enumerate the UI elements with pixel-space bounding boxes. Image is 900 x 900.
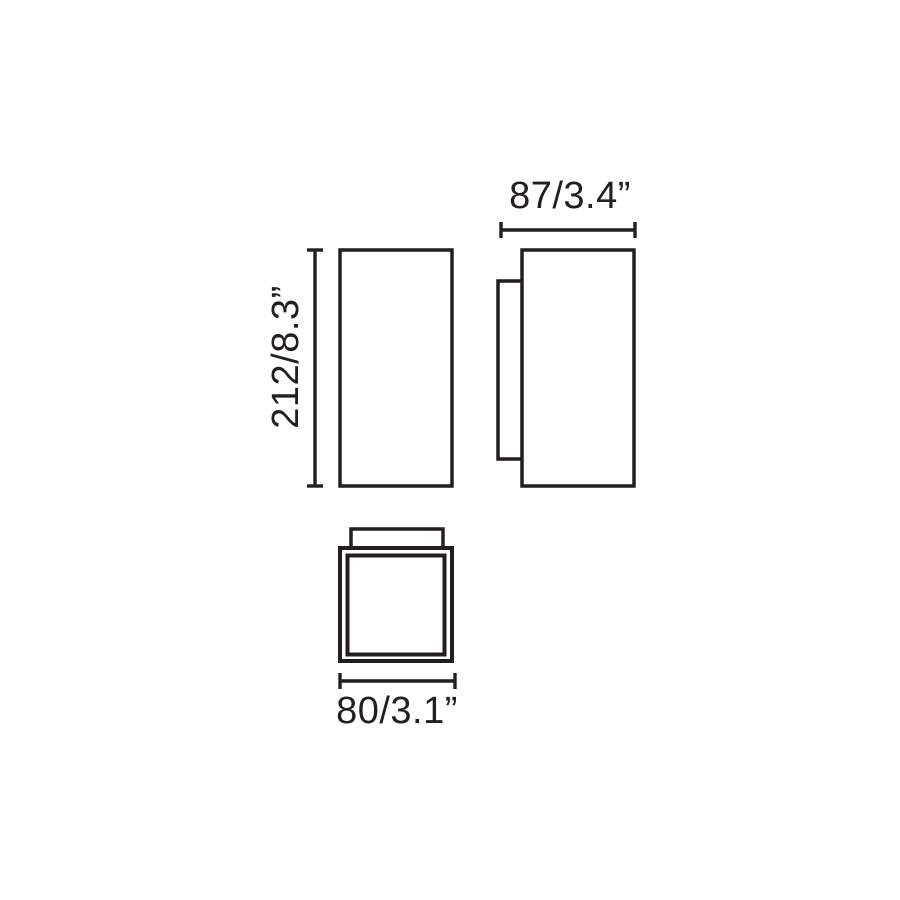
side-view-body-outline: [522, 250, 634, 486]
dimension-diagram: 212/8.3” 87/3.4” 80/3.1”: [0, 0, 900, 900]
bottom-view: [340, 529, 452, 661]
width-dimension: 80/3.1”: [336, 673, 458, 732]
dimension-drawing-svg: 212/8.3” 87/3.4” 80/3.1”: [0, 0, 900, 900]
depth-dimension-label: 87/3.4”: [509, 175, 631, 217]
width-dimension-label: 80/3.1”: [336, 690, 458, 732]
depth-dimension: 87/3.4”: [501, 175, 635, 238]
side-view: [498, 250, 634, 486]
front-view: [340, 250, 452, 486]
height-dimension-label: 212/8.3”: [265, 285, 307, 428]
height-dimension: 212/8.3”: [265, 250, 323, 486]
bottom-view-inner-outline: [348, 556, 445, 655]
front-view-outline: [340, 250, 452, 486]
side-view-wall-bracket: [498, 281, 524, 459]
